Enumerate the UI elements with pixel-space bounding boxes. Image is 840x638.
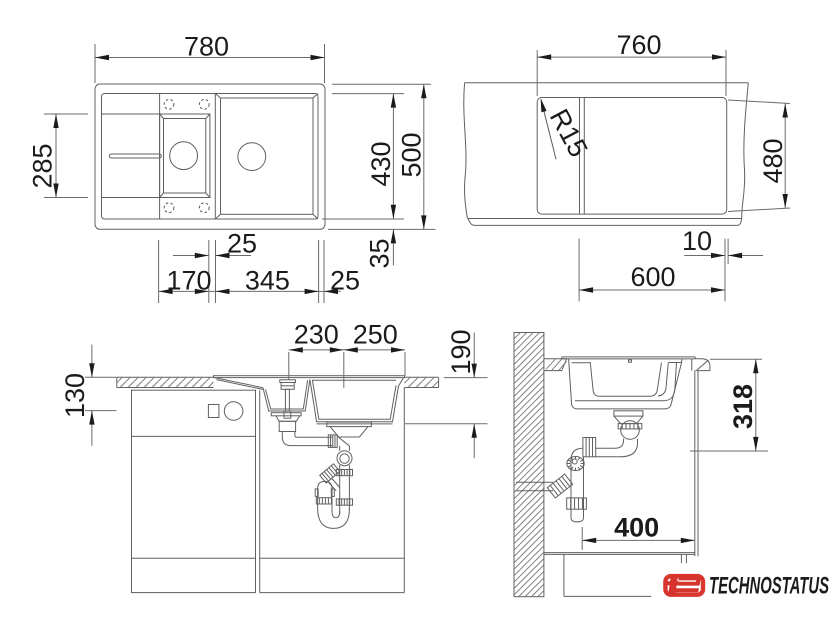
svg-text:400: 400 xyxy=(614,513,659,543)
svg-text:345: 345 xyxy=(245,266,290,296)
svg-text:600: 600 xyxy=(630,262,675,292)
svg-text:230: 230 xyxy=(294,320,339,350)
svg-text:318: 318 xyxy=(728,384,758,429)
svg-text:10: 10 xyxy=(682,226,712,256)
svg-text:190: 190 xyxy=(446,329,476,374)
svg-text:25: 25 xyxy=(227,229,257,259)
svg-text:25: 25 xyxy=(330,266,360,296)
svg-text:780: 780 xyxy=(184,31,229,61)
svg-text:35: 35 xyxy=(365,238,395,268)
svg-text:130: 130 xyxy=(60,373,90,418)
svg-text:760: 760 xyxy=(616,30,661,60)
svg-text:TECHNOSTATUS: TECHNOSTATUS xyxy=(709,572,829,599)
svg-text:285: 285 xyxy=(28,143,58,188)
svg-text:250: 250 xyxy=(353,320,398,350)
svg-text:480: 480 xyxy=(758,138,788,183)
svg-text:170: 170 xyxy=(166,266,211,296)
svg-text:500: 500 xyxy=(397,132,427,177)
svg-text:430: 430 xyxy=(366,141,396,186)
